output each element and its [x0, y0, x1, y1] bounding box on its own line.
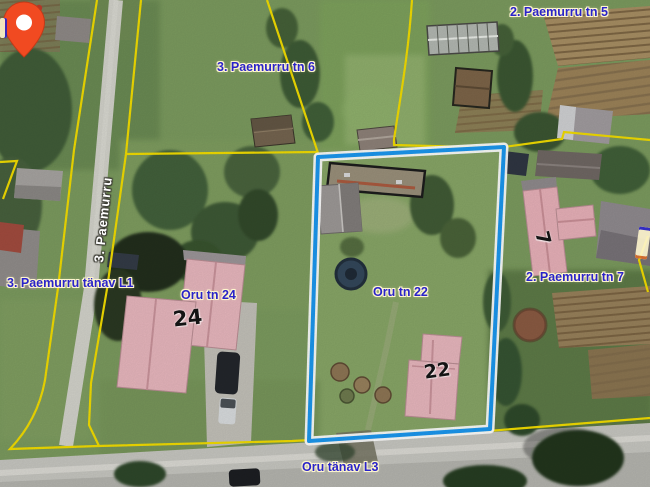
house-number-24: 24: [172, 305, 204, 332]
location-marker-icon[interactable]: [0, 0, 48, 60]
address-label-oru-tn-22: Oru tn 22: [373, 286, 428, 300]
parcel-label-paemurru-tn-5: 2. Paemurru tn 5: [510, 6, 608, 20]
address-label-oru-tn-24: Oru tn 24: [181, 289, 236, 303]
clipped-label-fragment-left: [0, 18, 7, 38]
parcel-label-paemurru-tn-7: 2. Paemurru tn 7: [526, 271, 624, 285]
house-number-22: 22: [423, 358, 452, 383]
map-viewport[interactable]: 2. Paemurru tn 5 3. Paemurru tn 6 3. Pae…: [0, 0, 650, 487]
street-label-oru-tanav-l3: Oru tänav L3: [302, 461, 378, 475]
parcel-label-paemurru-tn-6: 3. Paemurru tn 6: [217, 61, 315, 75]
street-label-paemurru-tanav-l1: 3. Paemurru tänav L1: [7, 277, 133, 291]
